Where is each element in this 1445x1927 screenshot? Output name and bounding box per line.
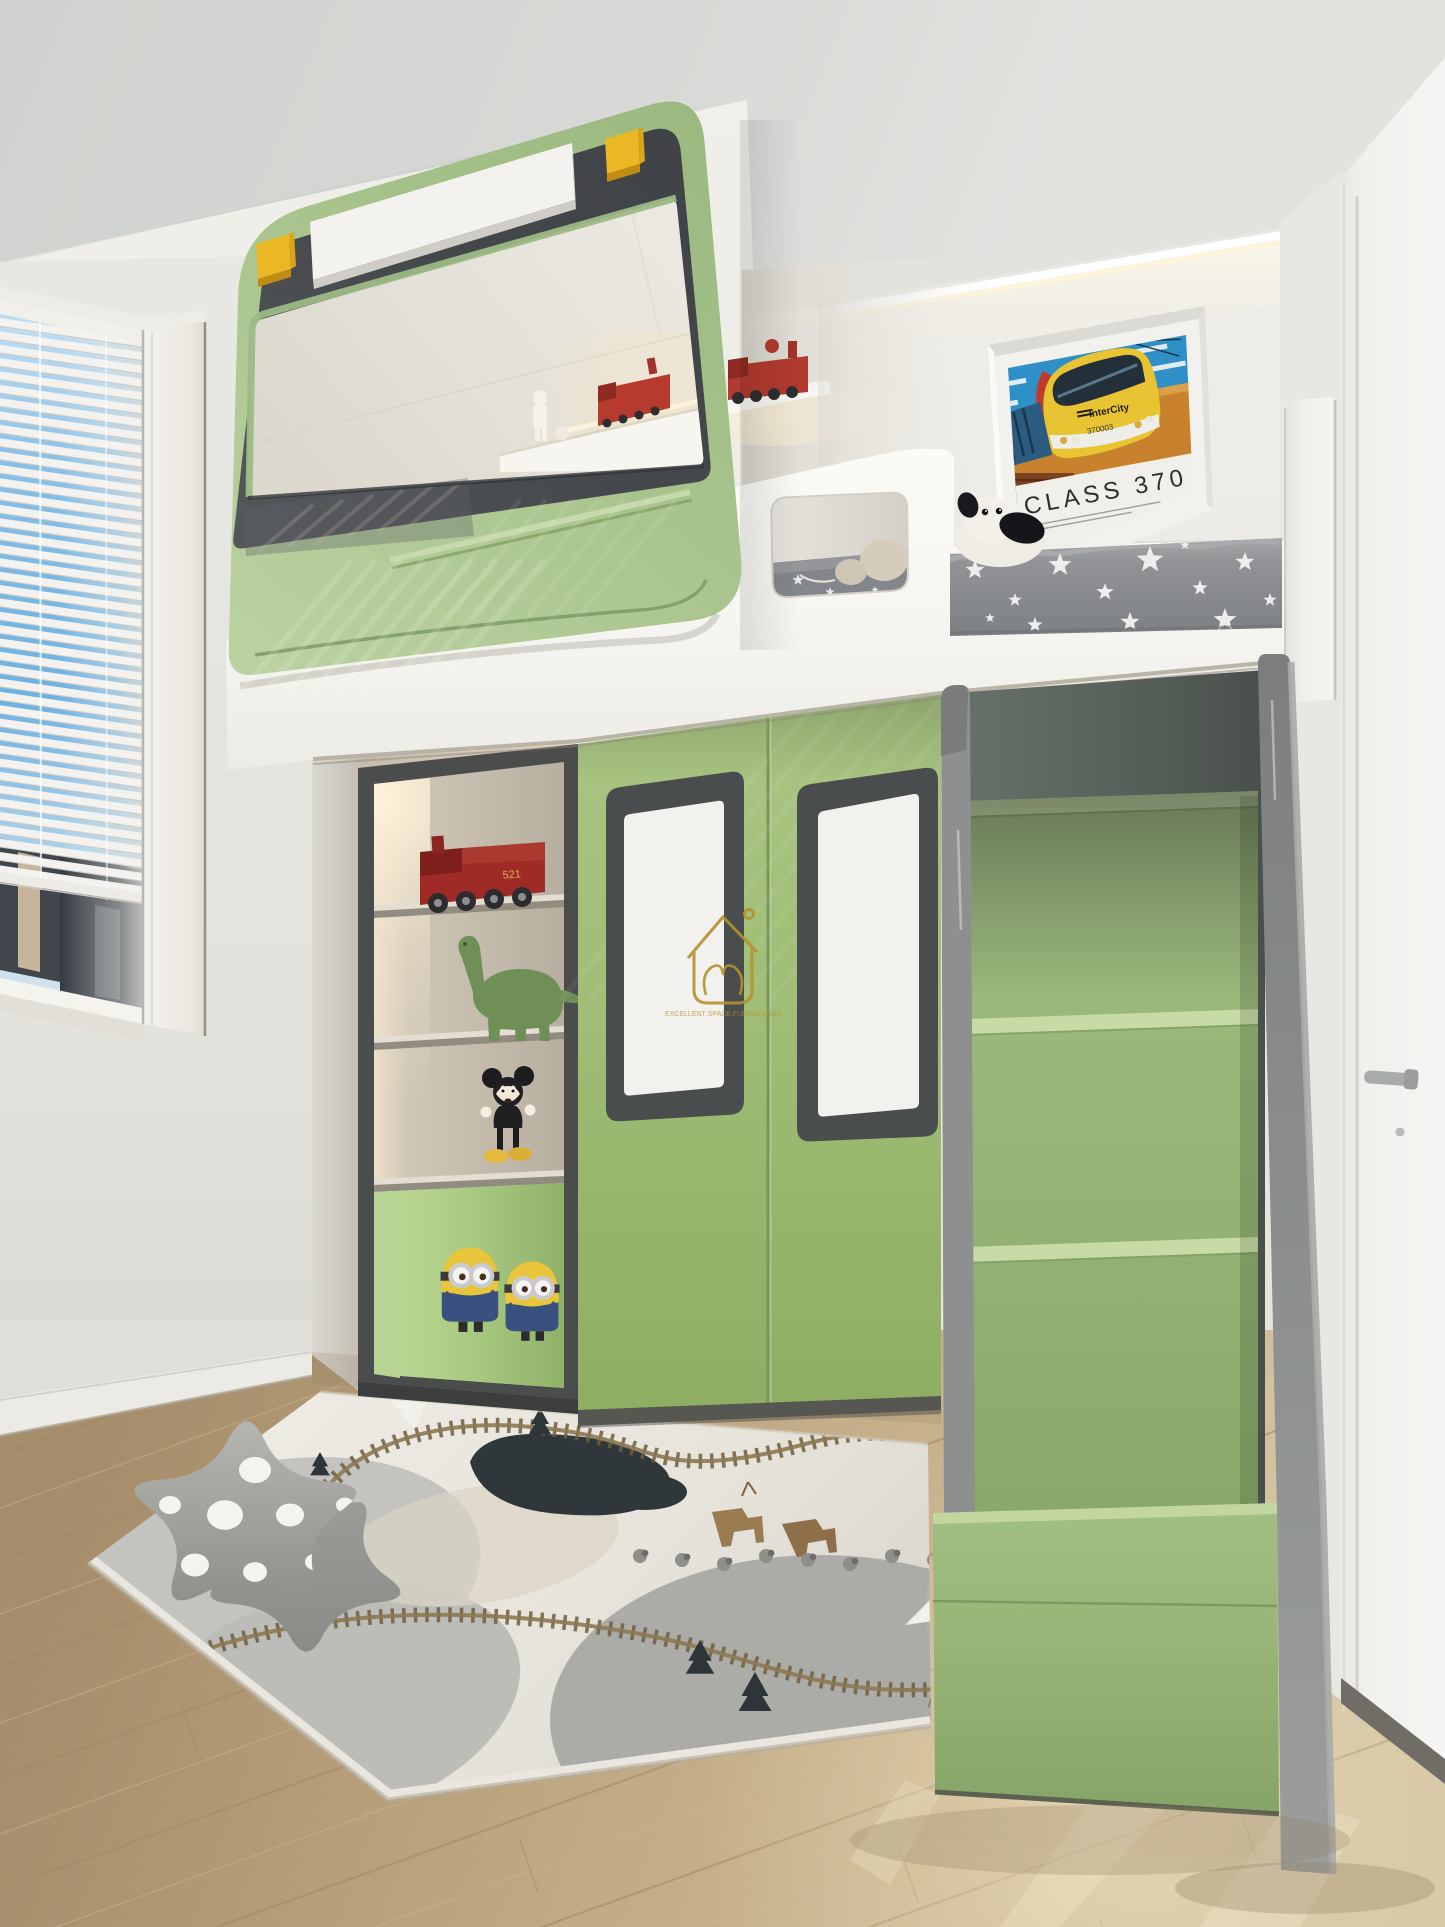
svg-text:EXCELLENT SPACE FURNISHINGS: EXCELLENT SPACE FURNISHINGS (665, 1011, 781, 1018)
svg-text:521: 521 (502, 868, 521, 881)
